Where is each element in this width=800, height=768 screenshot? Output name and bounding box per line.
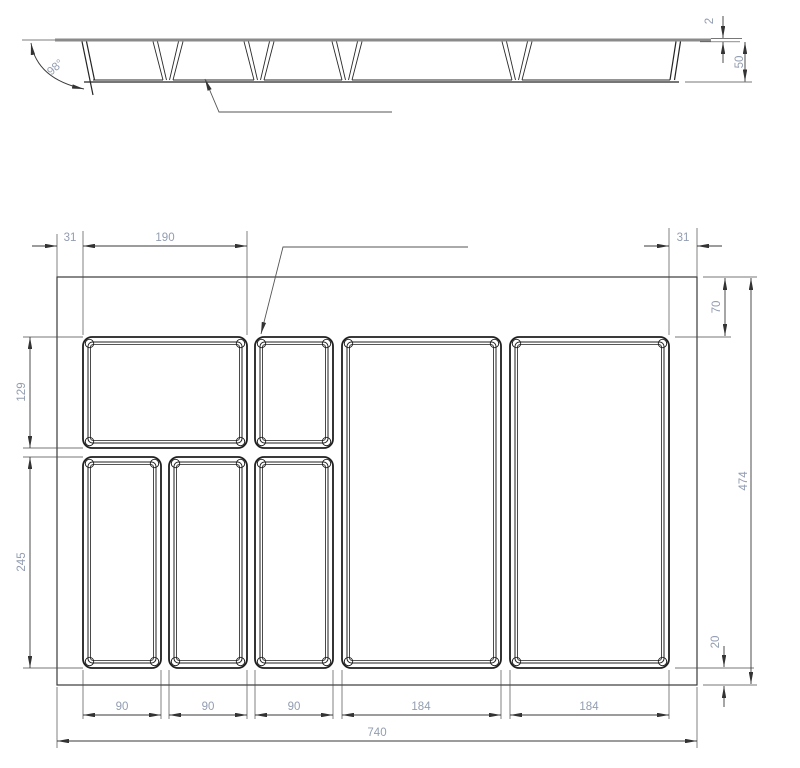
- dimension-bottom-row: 90 90 90 184 184 740: [57, 670, 697, 748]
- bottom-width-label-4: 184: [411, 701, 431, 713]
- side-left-wall: [82, 42, 95, 96]
- bottom-width-label-5: 184: [579, 701, 599, 713]
- side-divider-4: [502, 42, 532, 81]
- top-compartment-width-label: 190: [155, 232, 174, 244]
- side-view-section: 98° 2 50: [22, 16, 752, 112]
- dimension-left-column: 129 245: [16, 337, 83, 668]
- rim-thickness-label: 2: [704, 18, 716, 24]
- side-right-wall: [670, 42, 681, 81]
- compartment-top-small: [255, 337, 333, 448]
- drawing-canvas: 98° 2 50: [0, 0, 800, 768]
- compartment-bottom-1: [83, 457, 161, 668]
- tray-outline: [57, 277, 697, 685]
- bottom-width-label-1: 90: [116, 701, 129, 713]
- side-divider-1: [153, 42, 183, 81]
- side-leader-line: [205, 79, 392, 112]
- lower-depth-label: 245: [16, 552, 28, 571]
- side-divider-3: [332, 42, 362, 81]
- compartment-bottom-2: [169, 457, 247, 668]
- dimension-top-row: 31 190 31: [32, 228, 722, 335]
- plan-leader-line: [261, 247, 468, 334]
- angle-label: 98°: [45, 57, 66, 78]
- left-margin-label: 31: [64, 232, 77, 244]
- bottom-width-label-2: 90: [202, 701, 215, 713]
- side-floor: [84, 80, 679, 82]
- overall-width-label: 740: [367, 727, 386, 739]
- top-offset-label: 70: [711, 301, 723, 314]
- bottom-width-label-3: 90: [288, 701, 301, 713]
- compartment-tall-2: [510, 337, 669, 668]
- tray-height-label: 50: [734, 56, 746, 69]
- plan-view: 31 190 31 129 245 70: [16, 228, 757, 748]
- compartment-top-wide: [83, 337, 247, 448]
- dimension-right-column: 70 474 20: [675, 277, 757, 707]
- compartment-tall-1: [342, 337, 501, 668]
- dimension-wall-angle: 98°: [31, 43, 84, 89]
- bottom-offset-label: 20: [710, 636, 722, 649]
- technical-drawing: 98° 2 50: [0, 0, 800, 768]
- upper-depth-label: 129: [16, 382, 28, 401]
- overall-depth-label: 474: [738, 471, 750, 491]
- compartment-bottom-3: [255, 457, 333, 668]
- dimension-tray-height: 50: [685, 42, 752, 82]
- right-margin-label: 31: [677, 232, 690, 244]
- side-divider-2: [244, 42, 274, 81]
